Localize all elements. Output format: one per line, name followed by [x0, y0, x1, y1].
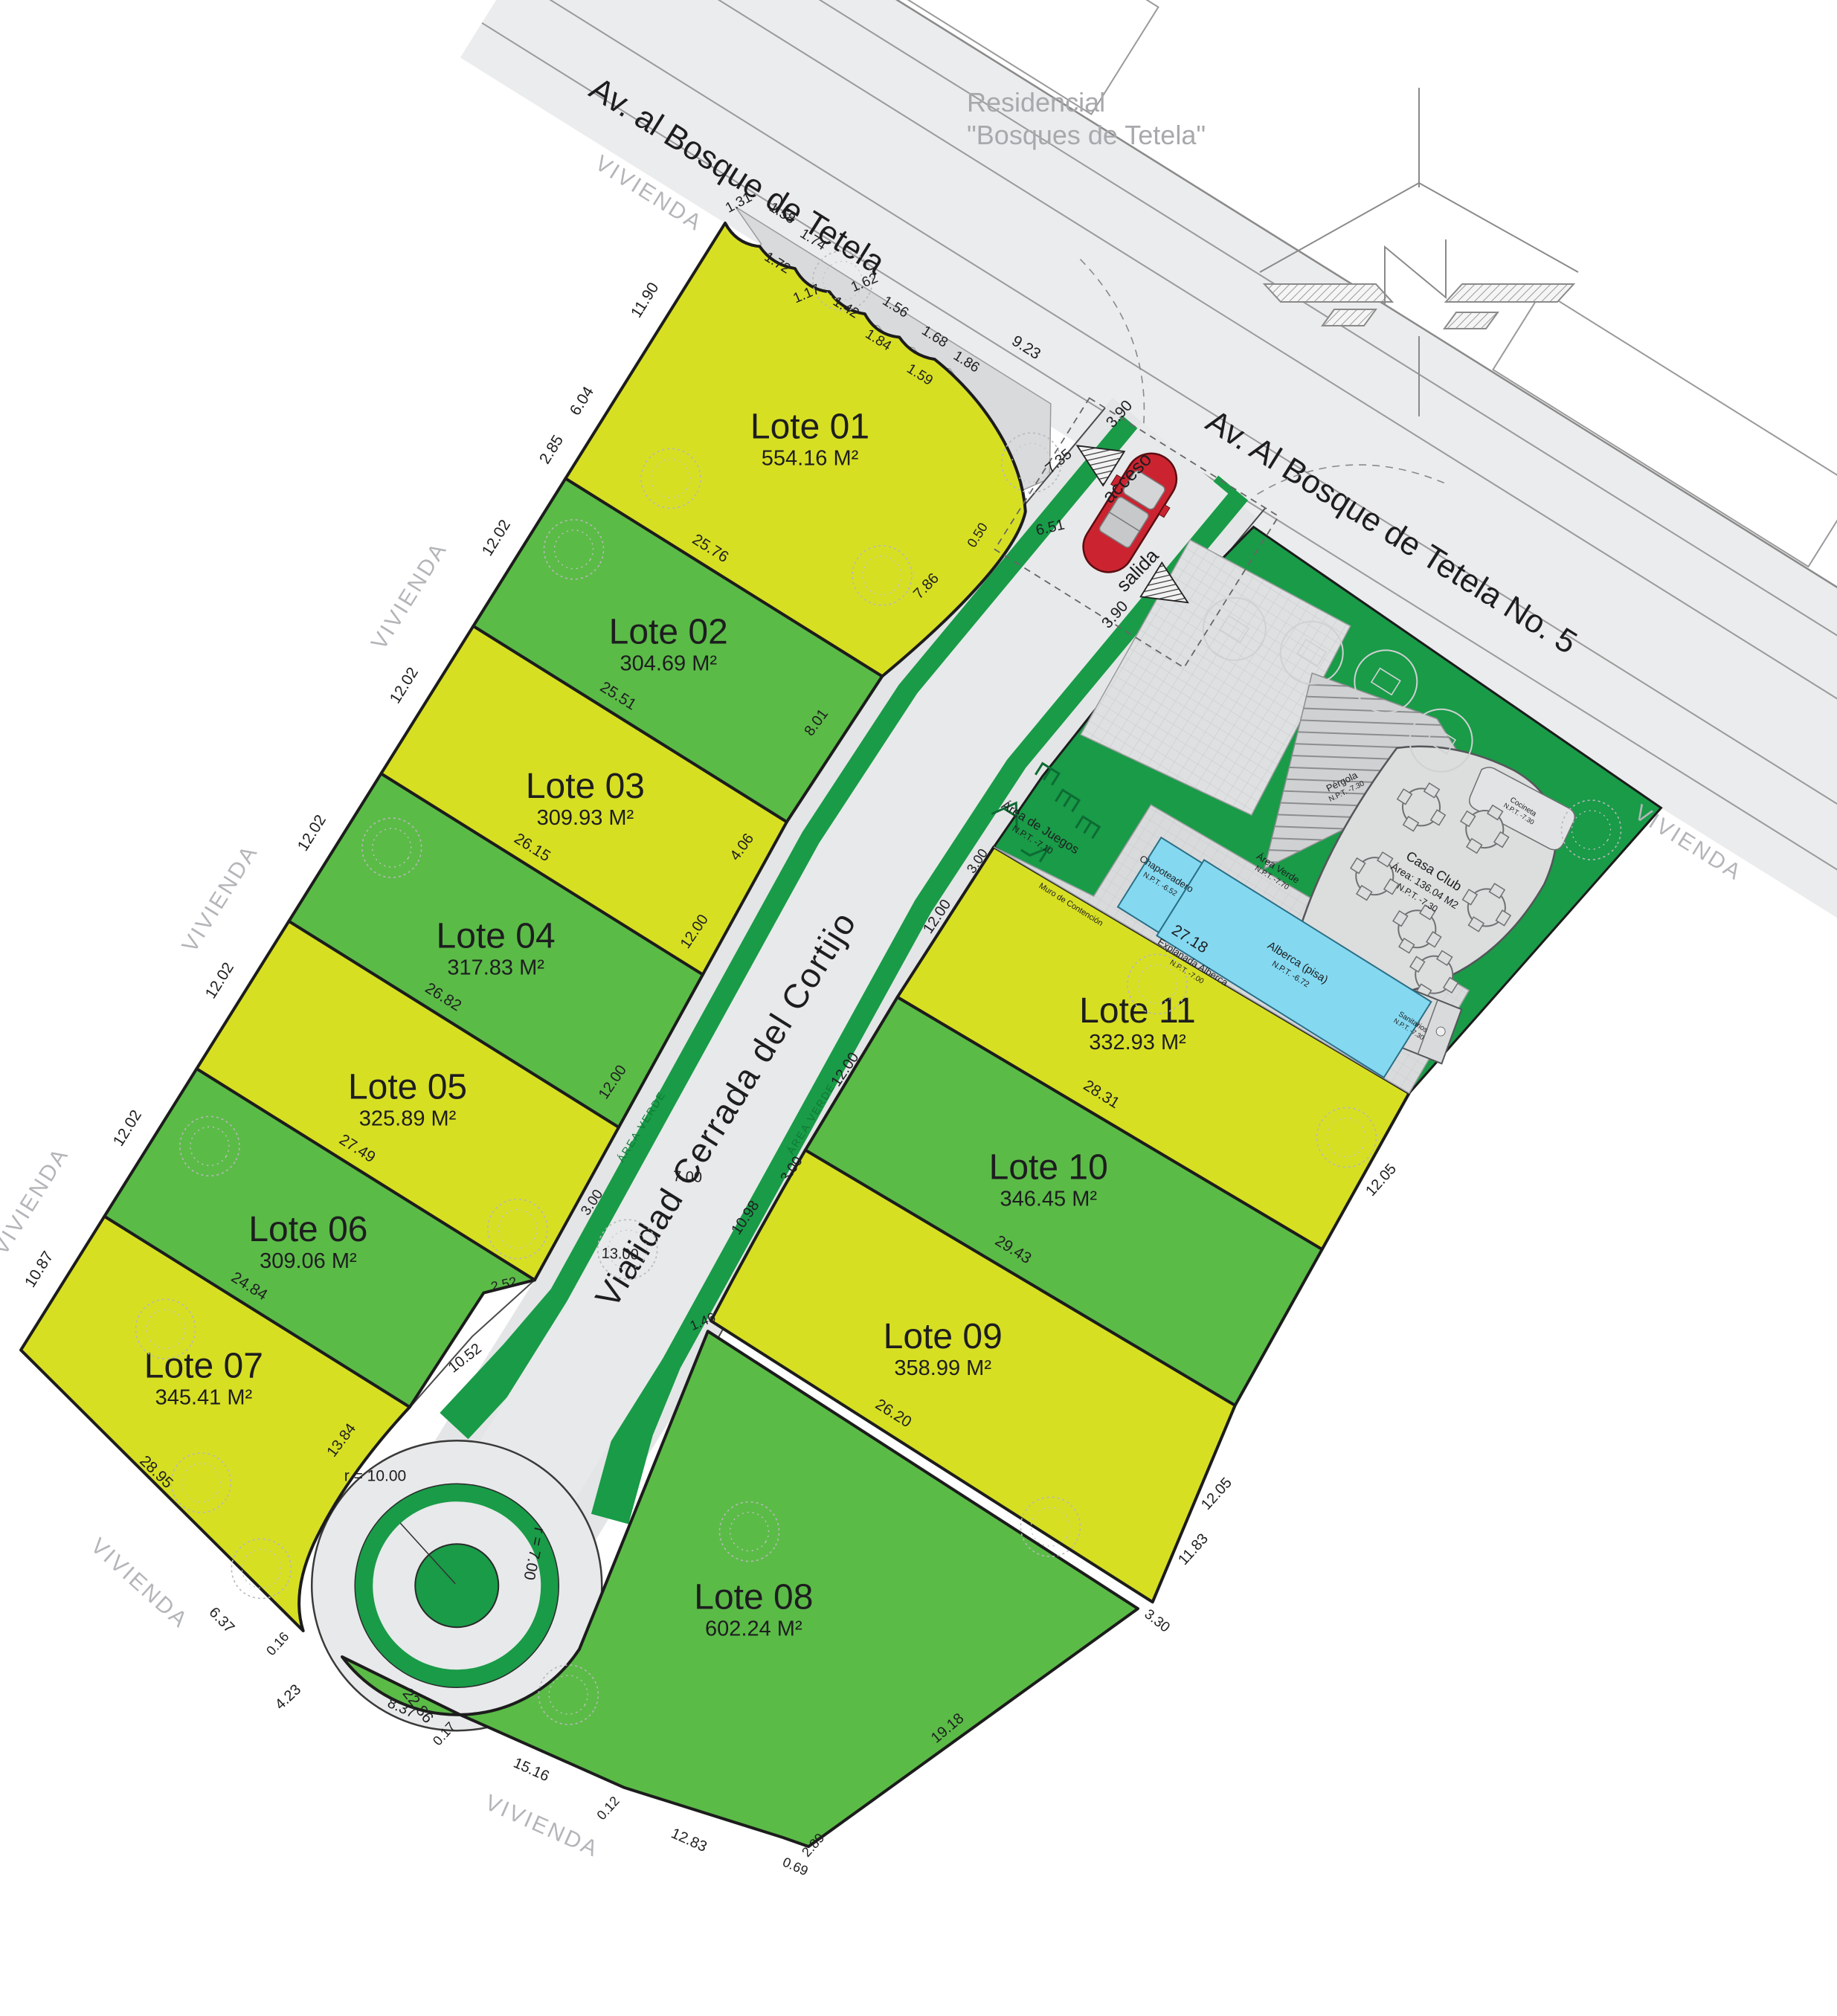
lot-09-name: Lote 09: [884, 1317, 1003, 1356]
lot-06-name: Lote 06: [248, 1210, 367, 1249]
dimension-label: 10.87: [22, 1249, 57, 1291]
radius-outer-label: r = 10.00: [344, 1468, 406, 1485]
lot-01-name: Lote 01: [750, 407, 869, 446]
lot-05-area: 325.89 M²: [359, 1107, 457, 1131]
dimension-label: 6.04: [567, 384, 597, 419]
residencial-line2: "Bosques de Tetela": [967, 120, 1206, 150]
vivienda-label: VIVIENDA: [481, 1790, 602, 1862]
vivienda-label: VIVIENDA: [86, 1533, 193, 1633]
lot-02-name: Lote 02: [609, 613, 728, 652]
dimension-label: 4.23: [272, 1681, 304, 1713]
dimension-label: 12.02: [110, 1107, 145, 1150]
dimension-label: 7.00: [673, 1168, 703, 1185]
dimension-label: 0.12: [594, 1794, 622, 1823]
lot-03-area: 309.93 M²: [537, 806, 634, 830]
lot-11-name: Lote 11: [1079, 991, 1196, 1031]
lot-04-area: 317.83 M²: [447, 956, 544, 980]
dimension-label: 15.16: [511, 1755, 552, 1785]
lot-07-area: 345.41 M²: [155, 1385, 253, 1409]
lot-08-name: Lote 08: [694, 1577, 813, 1617]
lot-05-name: Lote 05: [348, 1068, 467, 1107]
vivienda-label: VIVIENDA: [0, 1143, 74, 1260]
site-plan-svg: Av. al Bosque de Tetela Av. Al Bosque de…: [0, 0, 1837, 2016]
vivienda-label: VIVIENDA: [178, 840, 263, 957]
lot-07-name: Lote 07: [144, 1346, 263, 1385]
dimension-label: 13.00: [601, 1246, 639, 1263]
dimension-label: 12.83: [669, 1825, 710, 1855]
dimension-label: 0.69: [780, 1855, 810, 1879]
lot-02-area: 304.69 M²: [620, 652, 717, 676]
lot-11-area: 332.93 M²: [1089, 1031, 1186, 1054]
dimension-label: 2.85: [536, 432, 567, 467]
dimension-label: 12.02: [295, 812, 329, 854]
dimension-label: 12.02: [479, 517, 514, 559]
vivienda-label: VIVIENDA: [367, 538, 452, 654]
dimension-label: 12.02: [202, 959, 237, 1002]
lot-06-area: 309.06 M²: [260, 1249, 357, 1273]
dimension-label: 6.37: [205, 1604, 237, 1636]
lot-04-name: Lote 04: [437, 917, 556, 956]
lot-10-area: 346.45 M²: [1000, 1188, 1097, 1211]
residencial-line1: Residencial: [967, 87, 1105, 117]
dimension-label: 12.02: [387, 664, 422, 706]
lot-03-name: Lote 03: [526, 767, 645, 806]
lot-09-area: 358.99 M²: [894, 1356, 991, 1380]
dimension-label: 3.30: [1142, 1606, 1173, 1635]
lot-08-area: 602.24 M²: [705, 1617, 802, 1640]
site-plan-page: Av. al Bosque de Tetela Av. Al Bosque de…: [0, 0, 1837, 2016]
lot-10-name: Lote 10: [989, 1148, 1108, 1188]
dimension-label: 11.90: [628, 280, 663, 321]
dimension-label: 0.16: [263, 1629, 292, 1658]
lot-01-area: 554.16 M²: [762, 446, 859, 470]
